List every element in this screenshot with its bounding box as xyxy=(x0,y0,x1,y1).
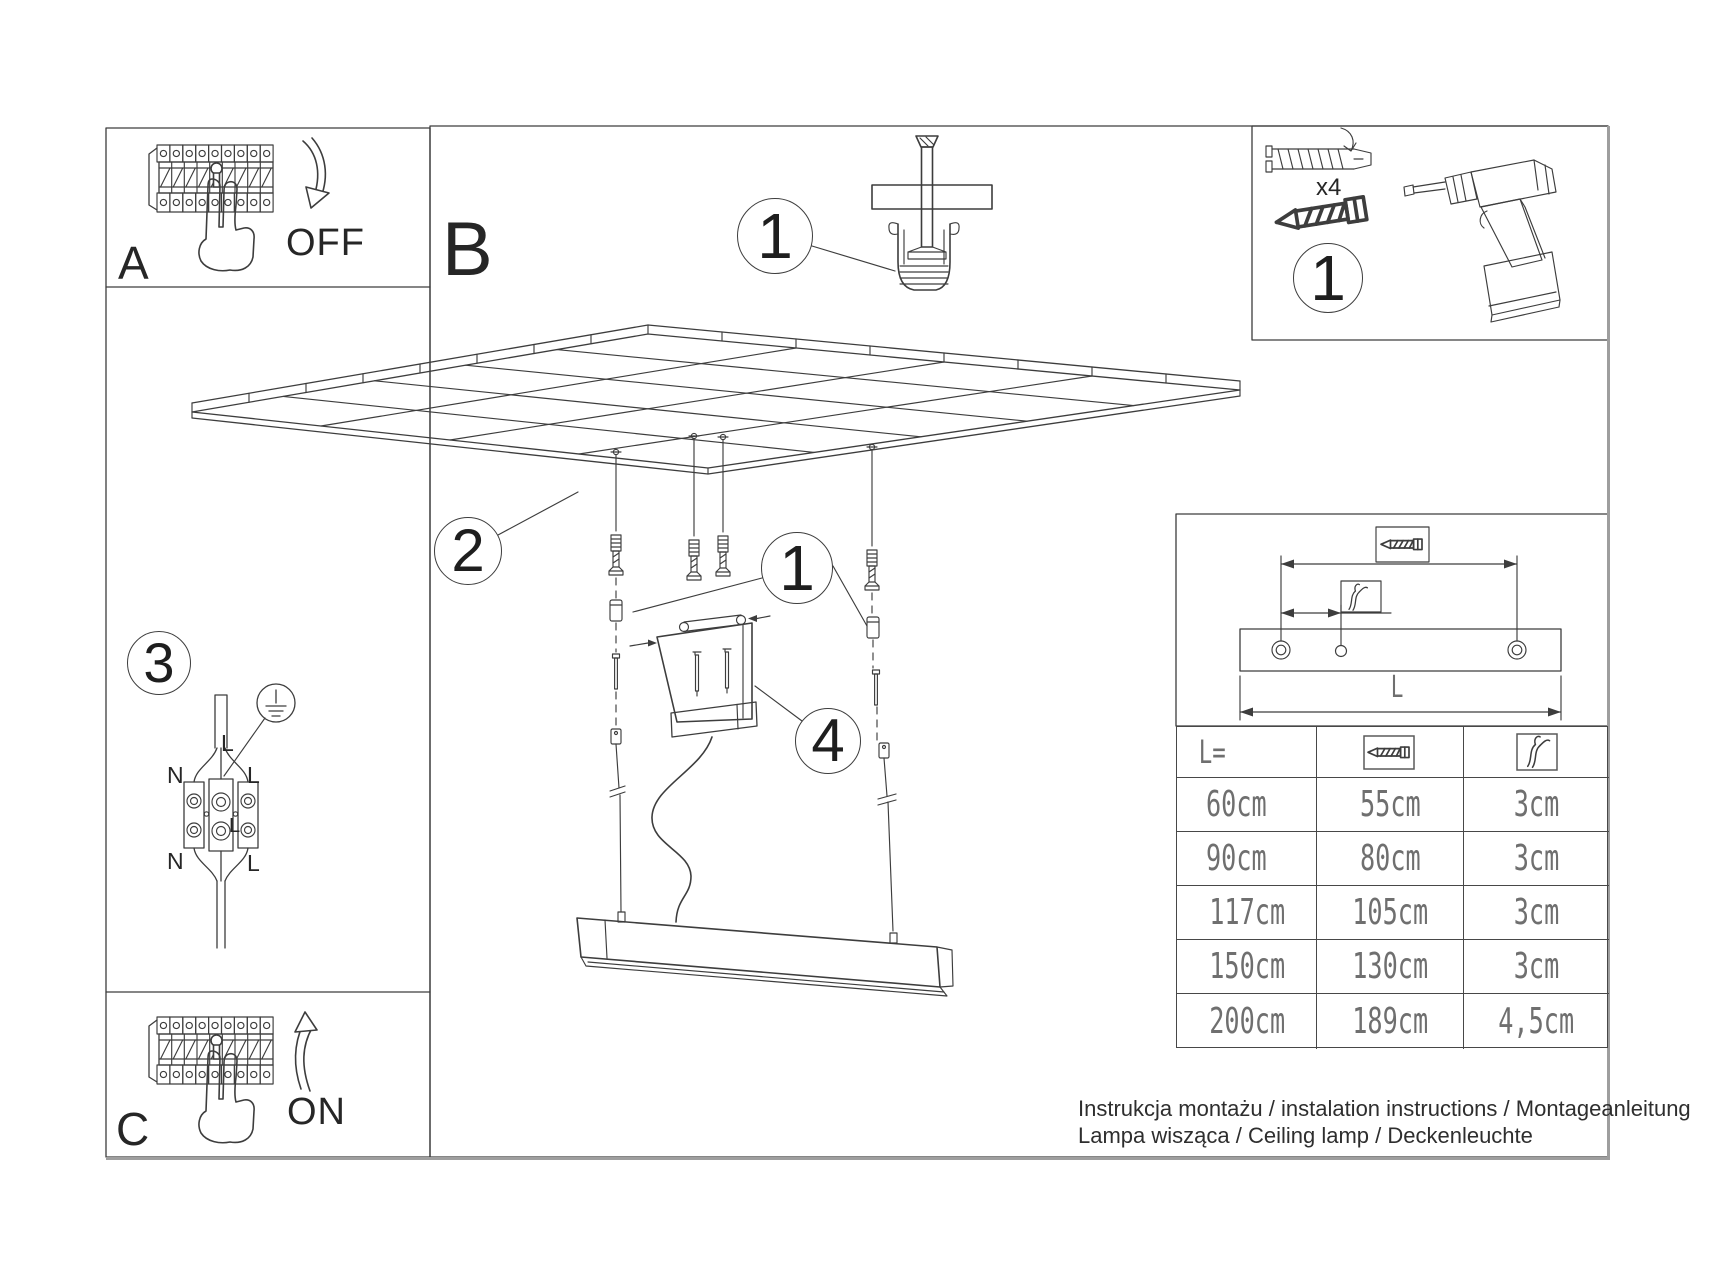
ground-icon xyxy=(257,684,295,722)
table-cell: 3cm xyxy=(1464,778,1609,832)
table-header-screw-icon xyxy=(1317,727,1464,778)
section-a-label: A xyxy=(118,240,149,286)
table-cell: 3cm xyxy=(1464,886,1609,940)
wire-strip-icon xyxy=(1349,584,1367,610)
pendant-lamp-drawing xyxy=(577,912,953,996)
arrow-down-icon xyxy=(303,138,329,208)
wiring-label-l-cable: L xyxy=(221,732,234,755)
section-c-label: C xyxy=(116,1106,149,1152)
table-cell: 150cm xyxy=(1177,940,1317,994)
length-dimension-label: L xyxy=(1377,670,1417,705)
footer-instructions-line: Instrukcja montażu / instalation instruc… xyxy=(1078,1096,1691,1122)
table-header-strip-icon xyxy=(1464,727,1609,778)
callout-leader-lines xyxy=(498,246,895,721)
arrow-up-icon xyxy=(295,1012,317,1091)
wiring-label-n-bottom: N xyxy=(167,850,184,873)
drill-icon xyxy=(1404,160,1560,322)
callout-wiring: 3 xyxy=(127,631,191,695)
callout-mounting-kit: 1 xyxy=(1293,243,1363,313)
footer-product-line: Lampa wisząca / Ceiling lamp / Deckenleu… xyxy=(1078,1123,1533,1149)
screw-icon xyxy=(1275,197,1367,234)
screw-icon xyxy=(1362,733,1418,771)
screw-icon xyxy=(1381,539,1422,550)
callout-suspension: 1 xyxy=(761,532,833,604)
table-cell: 80cm xyxy=(1317,832,1464,886)
wire-strip-icon xyxy=(1513,732,1561,772)
table-cell: 90cm xyxy=(1177,832,1317,886)
callout-grid: 2 xyxy=(434,517,502,585)
table-cell: 4,5cm xyxy=(1464,994,1609,1049)
canopy-drawing xyxy=(630,615,770,922)
line-artwork xyxy=(0,0,1716,1287)
ceiling-grid-drawing xyxy=(192,325,1240,474)
table-cell: 3cm xyxy=(1464,832,1609,886)
power-cord xyxy=(652,737,712,922)
table-cell: 105cm xyxy=(1317,886,1464,940)
wall-plug-icon xyxy=(1266,128,1371,172)
table-cell: 60cm xyxy=(1177,778,1317,832)
table-cell: 189cm xyxy=(1317,994,1464,1049)
table-cell: 200cm xyxy=(1177,994,1317,1049)
callout-canopy: 4 xyxy=(795,708,861,774)
power-on-label: ON xyxy=(287,1093,346,1131)
table-cell: 3cm xyxy=(1464,940,1609,994)
table-cell: 117cm xyxy=(1177,886,1317,940)
section-b-label: B xyxy=(442,212,493,288)
ceiling-anchor-section xyxy=(872,136,992,290)
power-off-label: OFF xyxy=(286,224,365,262)
wiring-label-l-center: L xyxy=(229,816,240,836)
callout-ceiling-anchor: 1 xyxy=(737,198,813,274)
installation-instruction-sheet: A B C OFF ON x4 1 1 1 2 3 4 N L L L N L … xyxy=(0,0,1716,1287)
table-cell: 55cm xyxy=(1317,778,1464,832)
table-header-length: L= xyxy=(1177,727,1317,778)
table-cell: 130cm xyxy=(1317,940,1464,994)
wiring-label-l-bottom: L xyxy=(247,852,260,875)
wiring-label-n-top: N xyxy=(167,764,184,787)
length-table: L= 60cm 55cm 3cm 90cm 80cm 3cm 117cm 105… xyxy=(1176,726,1608,1048)
dowel-quantity-label: x4 xyxy=(1316,176,1341,200)
wiring-label-l-top: L xyxy=(247,764,260,787)
